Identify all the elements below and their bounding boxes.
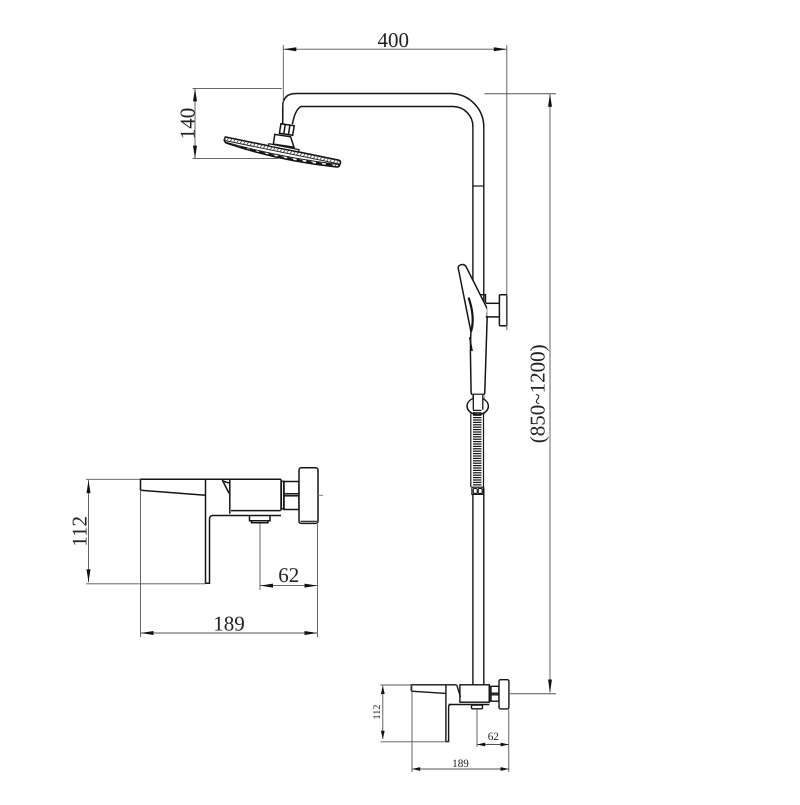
svg-text:189: 189 [213, 612, 245, 636]
svg-text:(850~1200): (850~1200) [526, 344, 550, 443]
svg-text:400: 400 [377, 28, 409, 52]
svg-text:62: 62 [488, 731, 499, 743]
svg-text:112: 112 [372, 705, 383, 720]
svg-text:62: 62 [278, 563, 299, 587]
svg-text:112: 112 [67, 516, 91, 547]
svg-text:189: 189 [452, 758, 469, 770]
svg-text:140: 140 [175, 108, 199, 140]
